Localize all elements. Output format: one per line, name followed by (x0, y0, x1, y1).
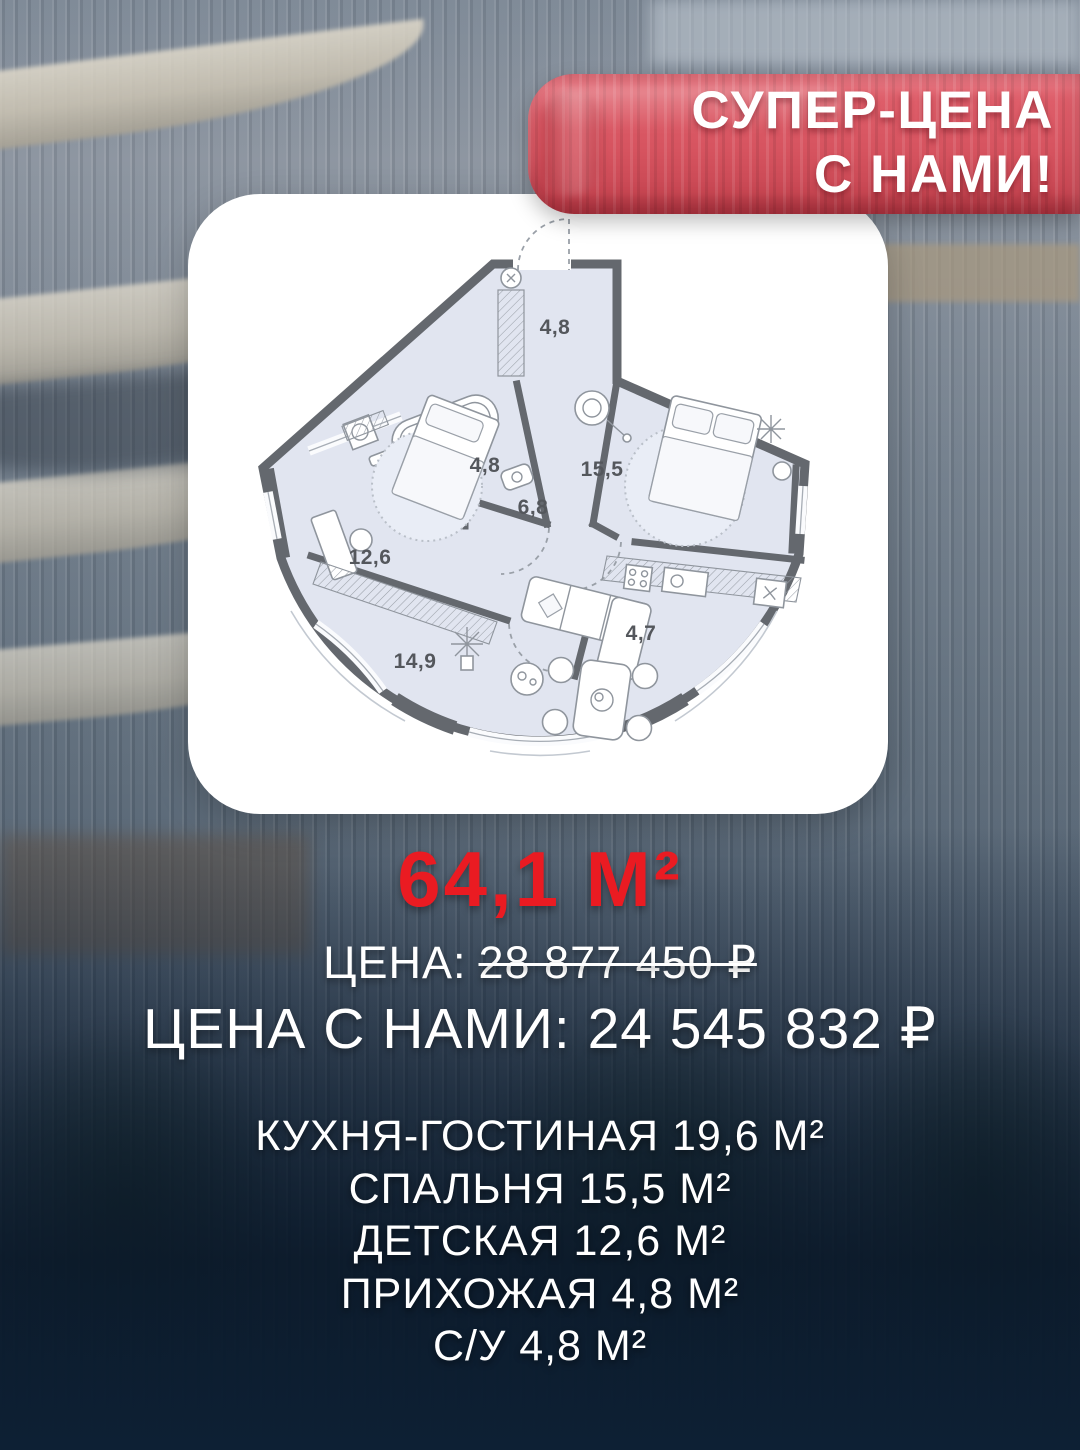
old-price-line: ЦЕНА:28 877 450 ₽ (0, 936, 1080, 989)
old-price-label: ЦЕНА: (323, 937, 466, 988)
armchair (575, 391, 609, 425)
floor-plan-card: 4,8 4,8 6,8 15,5 12,6 14,9 4,7 (188, 194, 888, 814)
room-list-item: С/У 4,8 М² (0, 1320, 1080, 1373)
new-price-label: ЦЕНА С НАМИ: (143, 997, 571, 1061)
label-bedroom: 15,5 (581, 458, 624, 481)
new-price-line: ЦЕНА С НАМИ: 24 545 832 ₽ (0, 996, 1080, 1062)
old-price-value: 28 877 450 ₽ (478, 937, 756, 988)
room-list: КУХНЯ-ГОСТИНАЯ 19,6 М² СПАЛЬНЯ 15,5 М² Д… (0, 1110, 1080, 1373)
ribbon-line1: СУПЕР-ЦЕНА (691, 79, 1054, 143)
area-headline: 64,1 М² (0, 834, 1080, 925)
label-bathroom: 4,8 (470, 454, 501, 477)
ribbon-text: СУПЕР-ЦЕНА С НАМИ! (691, 79, 1054, 207)
super-price-ribbon: СУПЕР-ЦЕНА С НАМИ! (528, 74, 1080, 214)
label-corridor: 6,8 (518, 496, 549, 519)
label-kitchen: 4,7 (626, 622, 657, 645)
real-estate-promo-poster: 4,8 4,8 6,8 15,5 12,6 14,9 4,7 СУПЕР-ЦЕН… (0, 0, 1080, 1450)
room-list-item: КУХНЯ-ГОСТИНАЯ 19,6 М² (0, 1110, 1080, 1163)
new-price-value: 24 545 832 ₽ (588, 997, 937, 1061)
label-living-room: 14,9 (394, 650, 437, 673)
room-list-item: ДЕТСКАЯ 12,6 М² (0, 1215, 1080, 1268)
coffee-table (511, 663, 543, 695)
label-hallway: 4,8 (540, 316, 571, 339)
entry-door-gap (513, 258, 571, 270)
hall-wardrobe (498, 290, 524, 376)
floor-plan-drawing: 4,8 4,8 6,8 15,5 12,6 14,9 4,7 (255, 208, 821, 784)
label-kids-room: 12,6 (349, 546, 392, 569)
stove (624, 565, 653, 592)
room-list-item: СПАЛЬНЯ 15,5 М² (0, 1163, 1080, 1216)
fridge (754, 578, 787, 607)
room-list-item: ПРИХОЖАЯ 4,8 М² (0, 1268, 1080, 1321)
nightstand (773, 462, 791, 480)
kitchen-sink (662, 567, 709, 596)
ribbon-line2: С НАМИ! (691, 143, 1054, 207)
bedroom-plant (757, 415, 785, 443)
